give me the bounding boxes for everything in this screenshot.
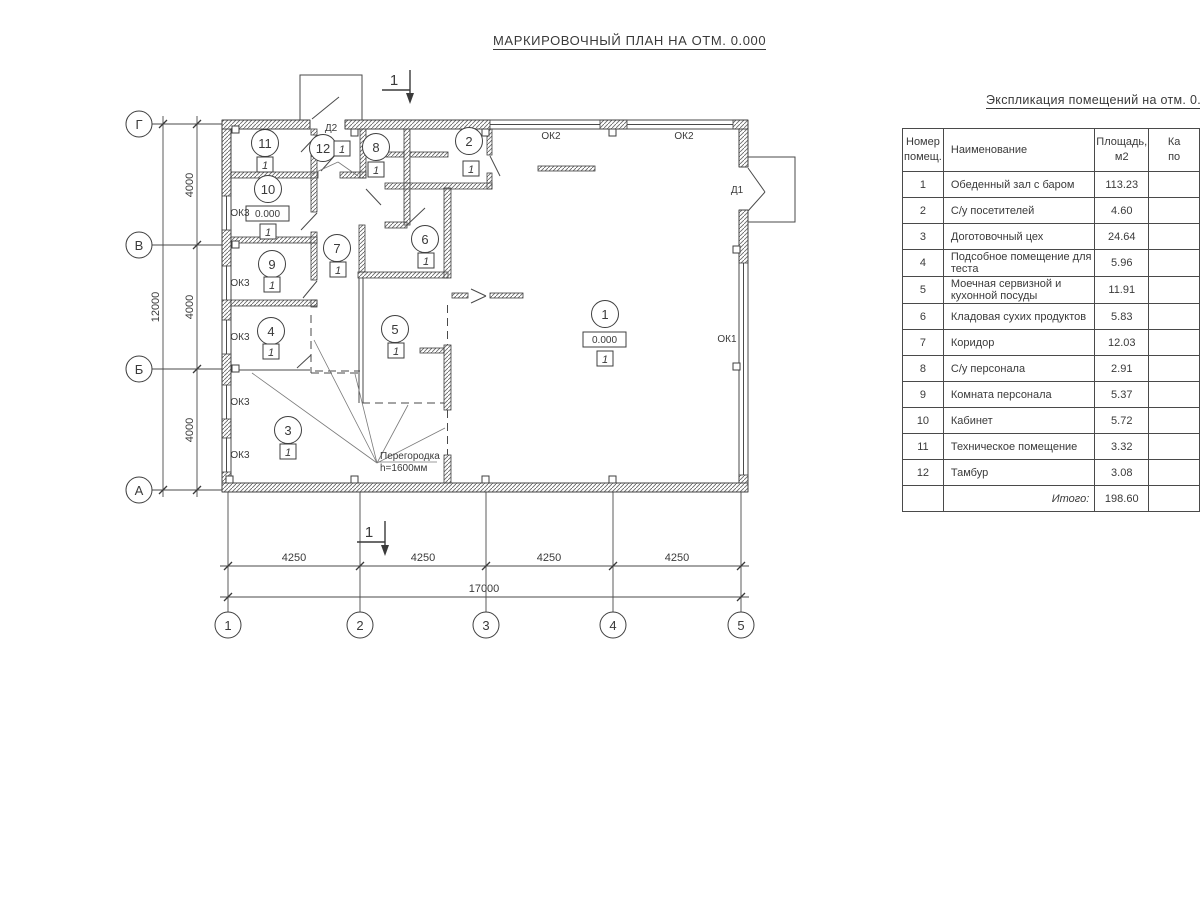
room-number-5: 5	[391, 322, 398, 337]
floor-mark: 1	[393, 346, 399, 358]
room-number-2: 2	[465, 134, 472, 149]
partition-note-line2: h=1600мм	[380, 463, 428, 474]
dim-4000-3: 4000	[184, 418, 196, 442]
room-category	[1149, 304, 1200, 330]
room-name: Моечная сервизной и кухонной посуды	[943, 277, 1094, 304]
total-category-cell	[1149, 486, 1200, 512]
floor-mark: 1	[268, 347, 274, 359]
dim-4250-4b: 4250	[665, 552, 689, 564]
room-name: Кладовая сухих продуктов	[943, 304, 1094, 330]
room-category	[1149, 356, 1200, 382]
axis-letter-a: А	[135, 483, 144, 498]
room-area: 3.08	[1095, 460, 1149, 486]
table-row: 7Коридор12.03	[903, 330, 1200, 356]
room-number-12: 12	[316, 141, 330, 156]
room-num: 11	[903, 434, 944, 460]
window-label-ok3: ОК3	[230, 208, 250, 219]
room-category	[1149, 198, 1200, 224]
door-label-d1: Д1	[731, 185, 744, 196]
room-name: Коридор	[943, 330, 1094, 356]
total-label: Итого:	[943, 486, 1094, 512]
floor-mark: 1	[468, 164, 474, 176]
header-room-number: Номер помещ.	[903, 129, 944, 172]
room-number-4: 4	[267, 324, 274, 339]
table-row: 3Доготовочный цех24.64	[903, 224, 1200, 250]
room-category	[1149, 277, 1200, 304]
room-category	[1149, 250, 1200, 277]
room-name: Подсобное помещение для теста	[943, 250, 1094, 277]
room-area: 24.64	[1095, 224, 1149, 250]
section-mark-bottom: 1	[357, 521, 389, 556]
table-row: 4Подсобное помещение для теста5.96	[903, 250, 1200, 277]
room-category	[1149, 330, 1200, 356]
total-empty-cell	[903, 486, 944, 512]
room-category	[1149, 434, 1200, 460]
floor-mark: 1	[423, 256, 429, 268]
dim-4250-1: 4250	[282, 552, 306, 564]
table-total-row: Итого: 198.60	[903, 486, 1200, 512]
floor-mark: 1	[602, 354, 608, 366]
room-area: 5.72	[1095, 408, 1149, 434]
room-num: 9	[903, 382, 944, 408]
axis-letter-g: Г	[135, 117, 142, 132]
axis-number-1: 1	[224, 618, 231, 633]
explication-table: Номер помещ. Наименование Площадь, м2 Ка…	[902, 128, 1200, 512]
axis-number-2: 2	[356, 618, 363, 633]
floor-mark: 1	[339, 144, 345, 156]
window-label-ok2: ОК2	[674, 131, 694, 142]
room-number-9: 9	[268, 257, 275, 272]
floor-mark: 1	[335, 265, 341, 277]
header-room-area: Площадь, м2	[1095, 129, 1149, 172]
table-row: 11Техническое помещение3.32	[903, 434, 1200, 460]
dim-4250-3: 4250	[537, 552, 561, 564]
room-number-1: 1	[601, 307, 608, 322]
section-label-top: 1	[390, 72, 398, 89]
room-category	[1149, 172, 1200, 198]
floor-mark: 1	[373, 165, 379, 177]
room-num: 10	[903, 408, 944, 434]
dim-4250-2: 4250	[411, 552, 435, 564]
room-area: 12.03	[1095, 330, 1149, 356]
dim-4000-2: 4000	[184, 295, 196, 319]
section-label-bottom: 1	[365, 524, 373, 541]
room-category	[1149, 224, 1200, 250]
floor-mark: 1	[262, 160, 268, 172]
section-mark-top: 1	[382, 70, 414, 104]
drawing-sheet: МАРКИРОВОЧНЫЙ ПЛАН НА ОТМ. 0.000 Эксплик…	[0, 0, 1200, 900]
header-room-category: Ка по	[1149, 129, 1200, 172]
floor-mark: 1	[269, 280, 275, 292]
room-num: 7	[903, 330, 944, 356]
room-number-8: 8	[372, 140, 379, 155]
room-area: 11.91	[1095, 277, 1149, 304]
axis-number-4: 4	[609, 618, 616, 633]
floor-mark: 1	[265, 227, 271, 239]
room-name: Обеденный зал с баром	[943, 172, 1094, 198]
room-area: 3.32	[1095, 434, 1149, 460]
dim-4000-1: 4000	[184, 173, 196, 197]
dim-17000: 17000	[469, 583, 500, 595]
room-name: Тамбур	[943, 460, 1094, 486]
door-label-d2: Д2	[325, 123, 338, 134]
dashed-partitions	[311, 305, 448, 455]
room-number-11: 11	[258, 136, 272, 151]
room-num: 8	[903, 356, 944, 382]
room-number-7: 7	[333, 241, 340, 256]
header-room-name: Наименование	[943, 129, 1094, 172]
table-row: 9Комната персонала5.37	[903, 382, 1200, 408]
room-area: 5.83	[1095, 304, 1149, 330]
room-area: 2.91	[1095, 356, 1149, 382]
axis-number-3: 3	[482, 618, 489, 633]
room-category	[1149, 382, 1200, 408]
window-label-ok3: ОК3	[230, 450, 250, 461]
room-num: 3	[903, 224, 944, 250]
room-area: 113.23	[1095, 172, 1149, 198]
window-label-ok3: ОК3	[230, 397, 250, 408]
partition-note: Перегородка h=1600мм	[380, 451, 440, 474]
total-area: 198.60	[1095, 486, 1149, 512]
axis-letter-v: В	[135, 238, 144, 253]
room-area: 5.96	[1095, 250, 1149, 277]
table-row: 8С/у персонала2.91	[903, 356, 1200, 382]
room-number-3: 3	[284, 423, 291, 438]
room-num: 6	[903, 304, 944, 330]
room-name: Доготовочный цех	[943, 224, 1094, 250]
room-category	[1149, 408, 1200, 434]
entry-porch-top	[300, 75, 362, 120]
room-area: 5.37	[1095, 382, 1149, 408]
window-label-ok2: ОК2	[541, 131, 561, 142]
window-label-ok3: ОК3	[230, 332, 250, 343]
room-area: 4.60	[1095, 198, 1149, 224]
axis-number-5: 5	[737, 618, 744, 633]
axis-letter-b: Б	[135, 362, 144, 377]
room-num: 5	[903, 277, 944, 304]
entry-porch-right	[748, 157, 795, 222]
dimension-ticks	[159, 120, 745, 601]
table-row: 1Обеденный зал с баром113.23	[903, 172, 1200, 198]
room-number-10: 10	[261, 182, 275, 197]
partition-note-line1: Перегородка	[380, 451, 440, 462]
room-name: С/у посетителей	[943, 198, 1094, 224]
table-row: 6Кладовая сухих продуктов5.83	[903, 304, 1200, 330]
room-num: 1	[903, 172, 944, 198]
room-category	[1149, 460, 1200, 486]
table-row: 12Тамбур3.08	[903, 460, 1200, 486]
room-num: 4	[903, 250, 944, 277]
room-name: Кабинет	[943, 408, 1094, 434]
table-row: 2С/у посетителей4.60	[903, 198, 1200, 224]
room-name: Техническое помещение	[943, 434, 1094, 460]
elevation-value: 0.000	[592, 335, 617, 346]
room-name: С/у персонала	[943, 356, 1094, 382]
window-label-ok3: ОК3	[230, 278, 250, 289]
window-label-ok1: ОК1	[717, 334, 737, 345]
hatched-walls	[222, 120, 748, 492]
explication-table-wrap: Номер помещ. Наименование Площадь, м2 Ка…	[902, 128, 1200, 512]
axis-bubbles: Г В Б А 1 2 3 4 5	[126, 111, 754, 638]
dim-12000: 12000	[150, 292, 162, 323]
floor-mark: 1	[285, 447, 291, 459]
table-header-row: Номер помещ. Наименование Площадь, м2 Ка…	[903, 129, 1200, 172]
room-num: 12	[903, 460, 944, 486]
room-num: 2	[903, 198, 944, 224]
elevation-value: 0.000	[255, 209, 280, 220]
room-name: Комната персонала	[943, 382, 1094, 408]
room-number-6: 6	[421, 232, 428, 247]
table-row: 5Моечная сервизной и кухонной посуды11.9…	[903, 277, 1200, 304]
table-row: 10Кабинет5.72	[903, 408, 1200, 434]
